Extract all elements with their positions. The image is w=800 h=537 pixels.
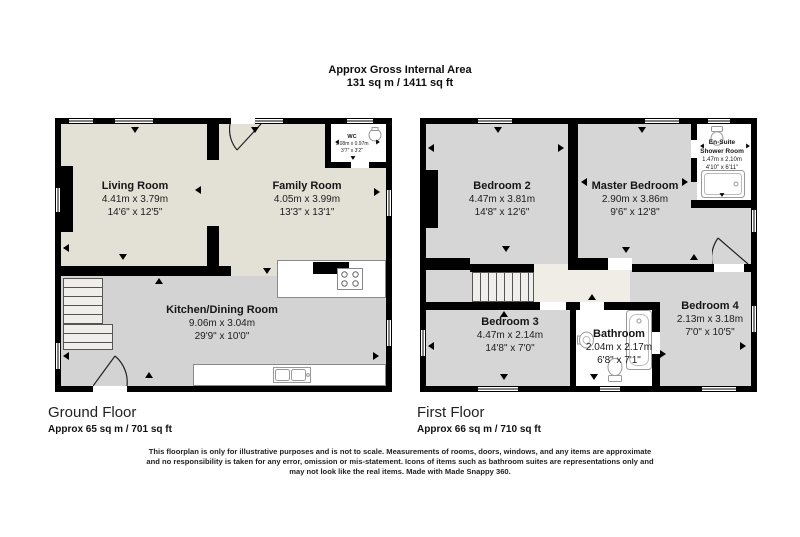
arrow-marker-icon	[335, 140, 339, 145]
title-line2: 131 sq m / 1411 sq ft	[0, 77, 800, 90]
chimney-breast	[61, 166, 73, 232]
arrow-marker-icon	[581, 178, 587, 186]
arrow-marker-icon	[690, 254, 698, 260]
wall	[420, 118, 757, 124]
ground-floor-plan: Living Room 4.41m x 3.79m 14'6" x 12'5" …	[55, 118, 392, 392]
ground-floor-area: Approx 65 sq m / 701 sq ft	[48, 424, 172, 435]
arrow-marker-icon	[590, 374, 598, 380]
master-door-opening	[608, 258, 632, 270]
arrow-marker-icon	[500, 374, 508, 380]
master-bedroom-label: Master Bedroom 2.90m x 3.86m 9'6" x 12'8…	[592, 180, 679, 219]
arrow-marker-icon	[155, 278, 163, 284]
bedroom4-label: Bedroom 4 2.13m x 3.18m 7'0" x 10'5"	[677, 300, 743, 339]
gross-internal-area-title: Approx Gross Internal Area 131 sq m / 14…	[0, 64, 800, 90]
arrow-marker-icon	[131, 127, 139, 133]
arrow-marker-icon	[376, 140, 380, 145]
bedroom3-door-opening	[540, 302, 566, 310]
arrow-marker-icon	[63, 244, 69, 252]
wall	[691, 200, 751, 208]
wc-door-opening	[351, 162, 369, 168]
first-floor-plan: Bedroom 2 4.47m x 3.81m 14'8" x 12'6" Ma…	[420, 118, 757, 392]
arrow-marker-icon	[660, 350, 666, 358]
window	[386, 320, 392, 346]
arrow-marker-icon	[373, 352, 379, 360]
wall	[751, 118, 757, 392]
chimney-breast	[426, 170, 438, 228]
bathroom-door-opening	[580, 302, 604, 310]
arrow-marker-icon	[740, 342, 746, 350]
arrow-marker-icon	[588, 294, 596, 300]
window	[386, 190, 392, 216]
first-floor-caption: First Floor Approx 66 sq m / 710 sq ft	[417, 404, 541, 435]
arrow-marker-icon	[682, 178, 688, 186]
floorplan-page: { "title": { "line1": "Approx Gross Inte…	[0, 0, 800, 537]
arrow-marker-icon	[351, 156, 356, 160]
hob-icon	[337, 268, 363, 290]
window	[645, 118, 679, 124]
wall	[470, 264, 534, 272]
arrow-marker-icon	[428, 144, 434, 152]
arrow-marker-icon	[720, 193, 725, 197]
window	[751, 306, 757, 332]
door-arc	[93, 352, 129, 387]
window	[751, 210, 757, 232]
kitchen-sink-icon	[273, 367, 311, 383]
wc-basin-icon	[367, 127, 383, 142]
bedroom3-label: Bedroom 3 4.47m x 2.14m 14'8" x 7'0"	[477, 316, 543, 355]
ground-floor-caption: Ground Floor Approx 65 sq m / 701 sq ft	[48, 404, 172, 435]
window	[702, 386, 736, 392]
ground-floor-name: Ground Floor	[48, 404, 172, 422]
bedroom4-door-opening	[714, 264, 744, 272]
wall	[207, 226, 219, 266]
wall	[426, 258, 470, 270]
arrow-marker-icon	[494, 127, 502, 133]
wc-label: WC 1.08m x 0.97m 3'7" x 3'2"	[335, 134, 368, 154]
arrow-marker-icon	[502, 246, 510, 252]
wall	[325, 124, 331, 162]
arrow-marker-icon	[638, 127, 646, 133]
arrow-marker-icon	[119, 254, 127, 260]
window	[55, 343, 61, 369]
arrow-marker-icon	[195, 186, 201, 194]
bedroom2-label: Bedroom 2 4.47m x 3.81m 14'8" x 12'6"	[469, 180, 535, 219]
ensuite-label: En-Suite Shower Room 1.47m x 2.10m 4'10"…	[700, 139, 744, 172]
first-floor-area: Approx 66 sq m / 710 sq ft	[417, 424, 541, 435]
door-arc	[712, 228, 749, 264]
first-floor-name: First Floor	[417, 404, 541, 422]
living-room-label: Living Room 4.41m x 3.79m 14'6" x 12'5"	[102, 180, 169, 219]
wall	[568, 124, 578, 264]
bathroom-label: Bathroom 2.04m x 2.17m 6'8" x 7'1"	[586, 328, 652, 367]
arrow-marker-icon	[558, 144, 564, 152]
family-room-label: Family Room 4.05m x 3.99m 13'3" x 13'1"	[272, 180, 341, 219]
window	[55, 188, 61, 212]
bathroom-side-opening	[652, 332, 660, 354]
ensuite-door-opening	[691, 140, 697, 158]
arrow-marker-icon	[374, 188, 380, 196]
arrow-marker-icon	[63, 352, 69, 360]
wall	[61, 266, 231, 276]
kitchen-dining-room-label: Kitchen/Dining Room 9.06m x 3.04m 29'9" …	[166, 304, 278, 343]
arrow-marker-icon	[700, 144, 704, 149]
arrow-marker-icon	[622, 247, 630, 253]
arrow-marker-icon	[263, 268, 271, 274]
arrow-marker-icon	[746, 144, 750, 149]
window	[600, 386, 620, 392]
window	[420, 330, 426, 356]
arrow-marker-icon	[145, 372, 153, 378]
wall	[570, 310, 576, 386]
staircase-lower	[63, 324, 113, 350]
title-line1: Approx Gross Internal Area	[0, 64, 800, 77]
window	[69, 118, 93, 124]
window	[478, 386, 518, 392]
staircase	[472, 272, 534, 302]
window	[478, 118, 512, 124]
wall	[207, 124, 219, 160]
arrow-marker-icon	[251, 127, 259, 133]
window	[115, 118, 153, 124]
wall	[386, 118, 392, 392]
staircase	[63, 278, 103, 324]
arrow-marker-icon	[428, 342, 434, 350]
window	[708, 118, 730, 124]
window	[347, 118, 373, 124]
disclaimer-text: This floorplan is only for illustrative …	[80, 447, 720, 476]
arrow-marker-icon	[500, 311, 508, 317]
